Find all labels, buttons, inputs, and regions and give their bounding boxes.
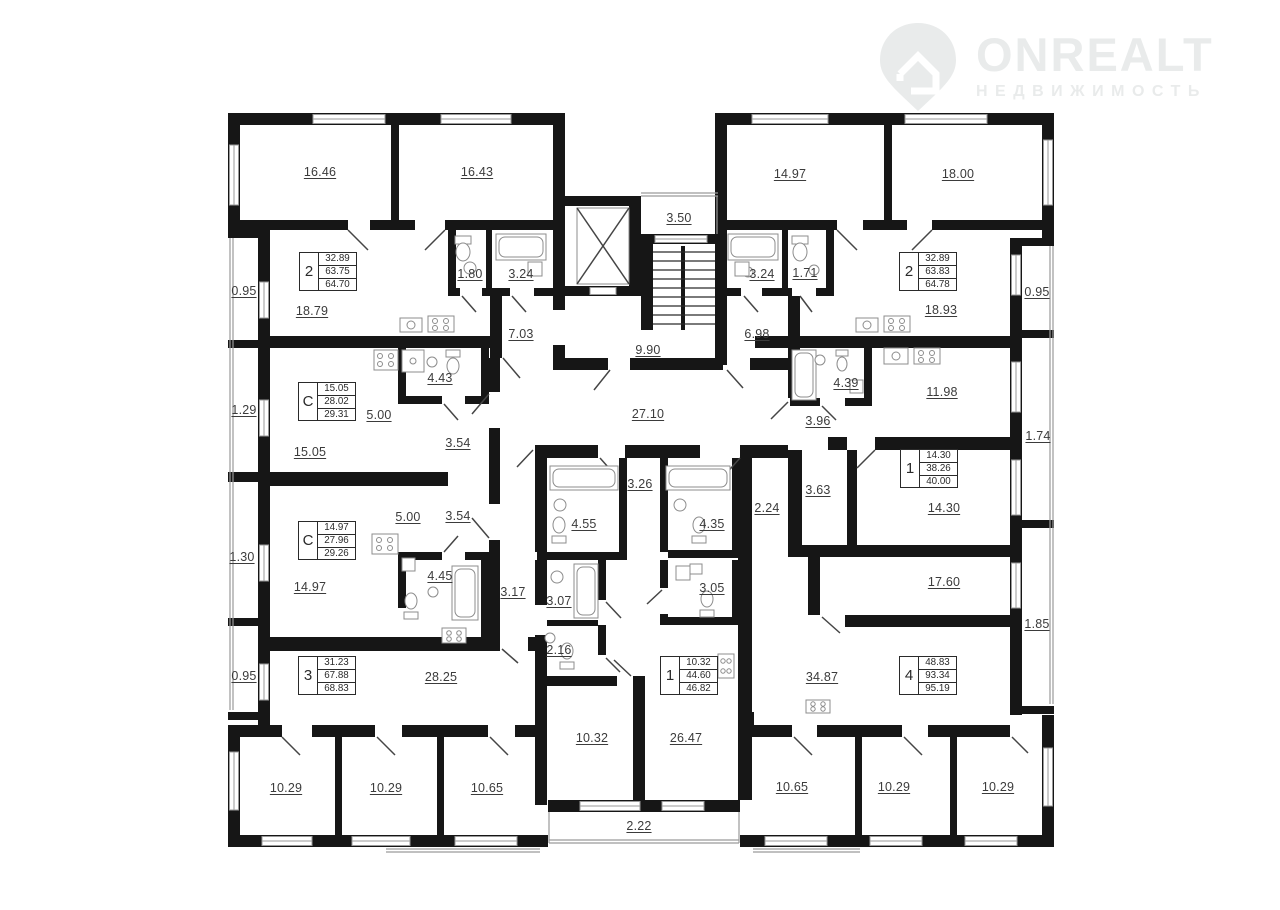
apartment-area-value: 64.78 xyxy=(919,279,956,291)
area-label: 0.95 xyxy=(231,669,256,683)
area-label: 14.97 xyxy=(774,167,806,181)
area-label: 16.46 xyxy=(304,165,336,179)
floorplan-drawing xyxy=(0,0,1280,910)
apartment-number: 2 xyxy=(900,253,919,290)
area-label: 3.24 xyxy=(508,267,533,281)
apartment-area-value: 63.83 xyxy=(919,266,956,279)
area-label: 34.87 xyxy=(806,670,838,684)
apartment-area-value: 14.30 xyxy=(920,450,957,463)
apartment-number: 1 xyxy=(901,450,920,487)
apartment-area-value: 32.89 xyxy=(919,253,956,266)
apartment-area-value: 27.96 xyxy=(318,535,355,548)
area-label: 3.05 xyxy=(699,581,724,595)
area-label: 2.22 xyxy=(626,819,651,833)
apartment-area-value: 95.19 xyxy=(919,683,956,695)
area-label: 10.29 xyxy=(878,780,910,794)
area-label: 10.29 xyxy=(982,780,1014,794)
apartment-area-value: 31.23 xyxy=(318,657,355,670)
apartment-number: 2 xyxy=(300,253,319,290)
area-label: 3.96 xyxy=(805,414,830,428)
apartment-area-value: 48.83 xyxy=(919,657,956,670)
apartment-card: 232.8963.7564.70 xyxy=(299,252,357,291)
apartment-area-value: 32.89 xyxy=(319,253,356,266)
apartment-area-value: 63.75 xyxy=(319,266,356,279)
apartment-card: 114.3038.2640.00 xyxy=(900,449,958,488)
apartment-card: С14.9727.9629.26 xyxy=(298,521,356,560)
area-label: 4.35 xyxy=(699,517,724,531)
apartment-area-value: 67.88 xyxy=(318,670,355,683)
area-label: 14.30 xyxy=(928,501,960,515)
apartment-area-value: 44.60 xyxy=(680,670,717,683)
area-label: 2.16 xyxy=(546,643,571,657)
area-label: 3.54 xyxy=(445,436,470,450)
apartment-area-value: 29.26 xyxy=(318,548,355,560)
area-label: 3.07 xyxy=(546,594,571,608)
area-label: 4.45 xyxy=(427,569,452,583)
apartment-number: 1 xyxy=(661,657,680,694)
apartment-number: С xyxy=(299,522,318,559)
apartment-area-value: 93.34 xyxy=(919,670,956,683)
area-label: 28.25 xyxy=(425,670,457,684)
apartment-number: 4 xyxy=(900,657,919,694)
area-label: 4.43 xyxy=(427,371,452,385)
area-label: 6.98 xyxy=(744,327,769,341)
area-label: 1.85 xyxy=(1024,617,1049,631)
apartment-card: 110.3244.6046.82 xyxy=(660,656,718,695)
apartment-area-value: 10.32 xyxy=(680,657,717,670)
apartment-card: 232.8963.8364.78 xyxy=(899,252,957,291)
area-label: 3.17 xyxy=(500,585,525,599)
area-label: 10.65 xyxy=(776,780,808,794)
area-label: 1.74 xyxy=(1025,429,1050,443)
apartment-area-value: 14.97 xyxy=(318,522,355,535)
apartment-area-value: 15.05 xyxy=(318,383,355,396)
area-label: 10.29 xyxy=(270,781,302,795)
area-label: 4.55 xyxy=(571,517,596,531)
apartment-area-value: 64.70 xyxy=(319,279,356,291)
area-label: 10.32 xyxy=(576,731,608,745)
apartment-area-value: 40.00 xyxy=(920,476,957,488)
area-label: 1.71 xyxy=(792,266,817,280)
floorplan-page: ONREALT НЕДВИЖИМОСТЬ xyxy=(0,0,1280,910)
area-label: 14.97 xyxy=(294,580,326,594)
area-label: 3.26 xyxy=(627,477,652,491)
area-label: 17.60 xyxy=(928,575,960,589)
apartment-area-value: 28.02 xyxy=(318,396,355,409)
area-label: 0.95 xyxy=(231,284,256,298)
area-label: 1.29 xyxy=(231,403,256,417)
elevator xyxy=(577,208,629,284)
area-label: 9.90 xyxy=(635,343,660,357)
apartment-card: С15.0528.0229.31 xyxy=(298,382,356,421)
area-label: 16.43 xyxy=(461,165,493,179)
apartment-card: 448.8393.3495.19 xyxy=(899,656,957,695)
area-label: 2.24 xyxy=(754,501,779,515)
apartment-number: 3 xyxy=(299,657,318,694)
area-label: 0.95 xyxy=(1024,285,1049,299)
area-label: 15.05 xyxy=(294,445,326,459)
area-label: 3.50 xyxy=(666,211,691,225)
area-label: 1.30 xyxy=(229,550,254,564)
area-label: 7.03 xyxy=(508,327,533,341)
apartment-area-value: 46.82 xyxy=(680,683,717,695)
apartment-area-value: 29.31 xyxy=(318,409,355,421)
apartment-area-value: 38.26 xyxy=(920,463,957,476)
area-label: 11.98 xyxy=(926,385,957,399)
area-label: 18.79 xyxy=(296,304,328,318)
area-label: 18.00 xyxy=(942,167,974,181)
area-label: 5.00 xyxy=(366,408,391,422)
apartment-area-value: 68.83 xyxy=(318,683,355,695)
area-label: 5.00 xyxy=(395,510,420,524)
area-label: 3.54 xyxy=(445,509,470,523)
area-label: 10.29 xyxy=(370,781,402,795)
area-label: 18.93 xyxy=(925,303,957,317)
area-label: 1.80 xyxy=(457,267,482,281)
apartment-card: 331.2367.8868.83 xyxy=(298,656,356,695)
area-label: 26.47 xyxy=(670,731,702,745)
apartment-number: С xyxy=(299,383,318,420)
area-label: 3.24 xyxy=(749,267,774,281)
area-label: 4.39 xyxy=(833,376,858,390)
area-label: 10.65 xyxy=(471,781,503,795)
area-label: 3.63 xyxy=(805,483,830,497)
area-label: 27.10 xyxy=(632,407,664,421)
